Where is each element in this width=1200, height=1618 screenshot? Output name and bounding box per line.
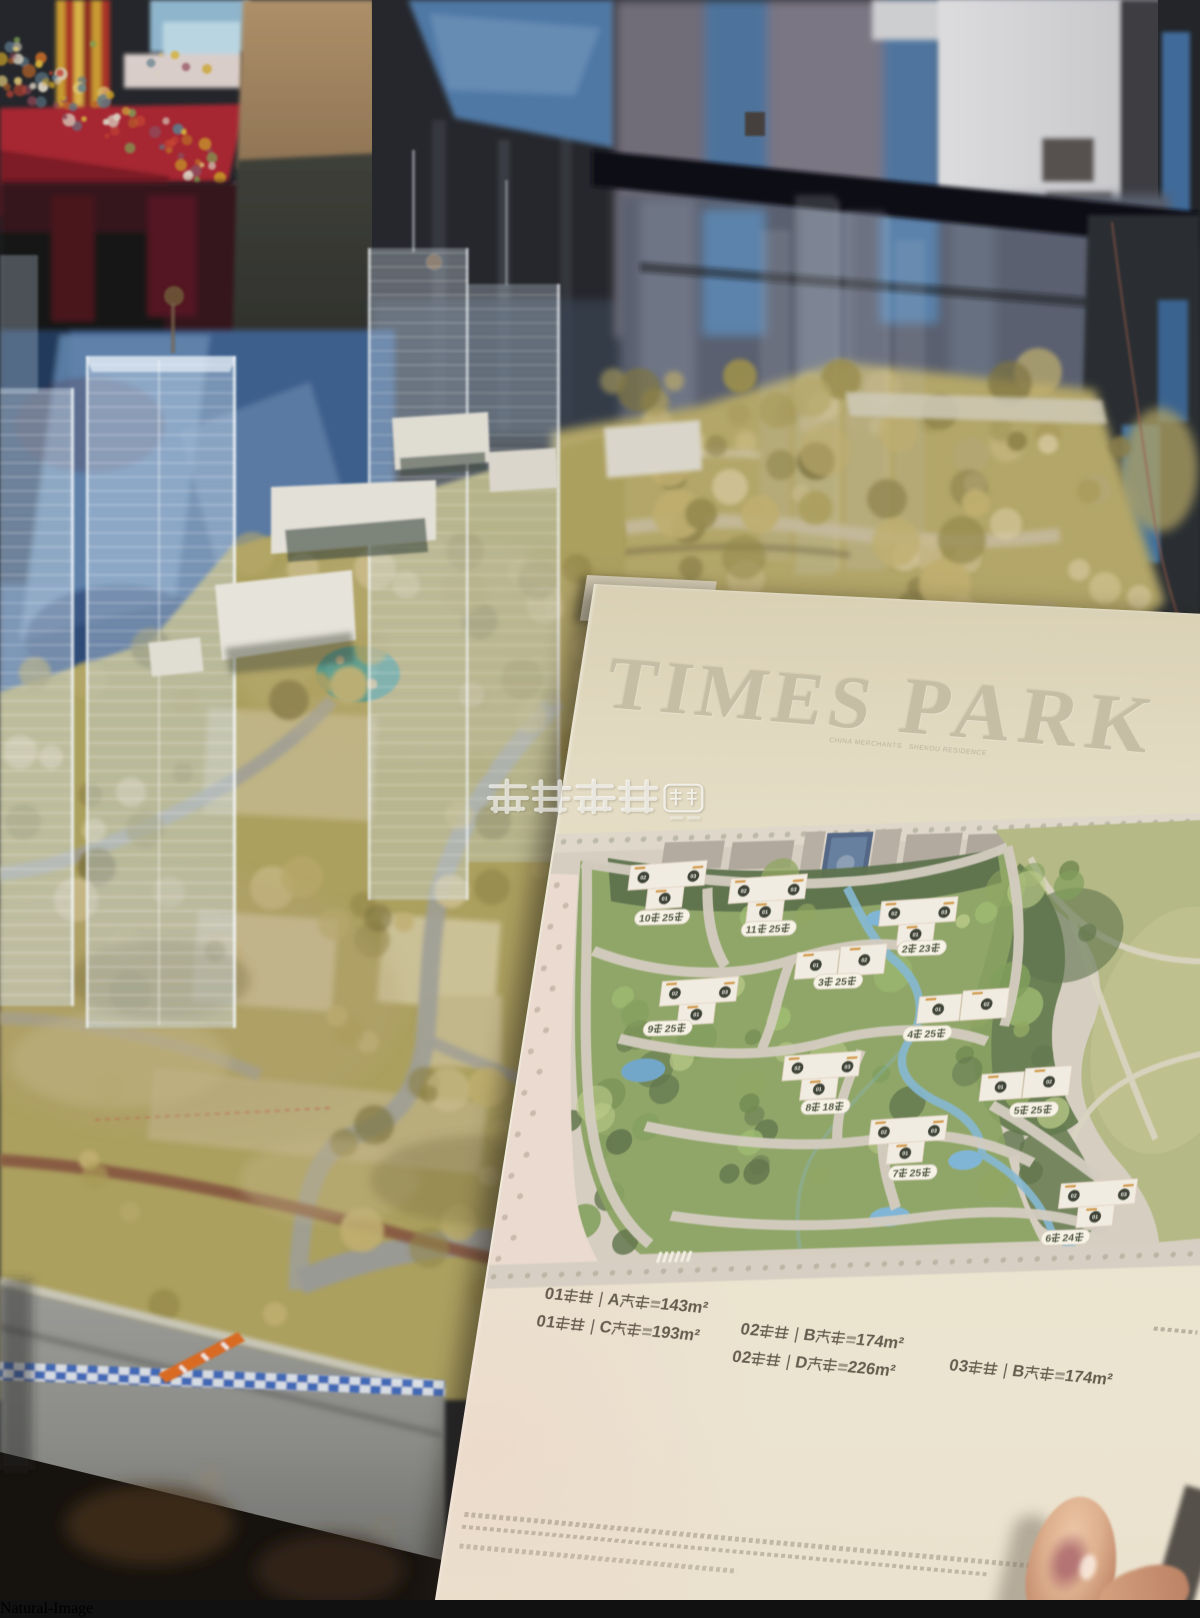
svg-text:25: 25 xyxy=(924,1029,937,1040)
svg-text:03: 03 xyxy=(844,1064,851,1070)
svg-text:02: 02 xyxy=(983,1002,990,1008)
svg-text:18: 18 xyxy=(822,1102,835,1113)
svg-text:01: 01 xyxy=(935,1007,942,1013)
svg-text:01: 01 xyxy=(693,1012,700,1018)
svg-text:01: 01 xyxy=(812,963,819,969)
svg-text:02: 02 xyxy=(861,958,868,964)
svg-text:25: 25 xyxy=(664,1024,677,1035)
svg-text:10: 10 xyxy=(638,913,651,924)
svg-text:02: 02 xyxy=(891,911,898,917)
svg-text:25: 25 xyxy=(661,913,674,924)
svg-text:01: 01 xyxy=(815,1087,822,1093)
svg-text:25: 25 xyxy=(834,977,847,988)
svg-text:03: 03 xyxy=(721,990,728,996)
svg-text:01: 01 xyxy=(1092,1215,1099,1221)
svg-text:23: 23 xyxy=(918,944,931,955)
svg-text:01: 01 xyxy=(912,932,919,938)
svg-text:03: 03 xyxy=(790,887,797,893)
svg-text:25: 25 xyxy=(768,924,781,935)
svg-text:02: 02 xyxy=(740,889,747,895)
svg-text:11: 11 xyxy=(745,925,758,936)
svg-text:01: 01 xyxy=(997,1085,1004,1091)
svg-text:02: 02 xyxy=(671,991,678,997)
svg-text:02: 02 xyxy=(880,1130,887,1136)
svg-text:01: 01 xyxy=(902,1151,909,1157)
svg-text:25: 25 xyxy=(1030,1105,1043,1116)
svg-text:24: 24 xyxy=(1062,1233,1075,1244)
svg-text:01: 01 xyxy=(762,910,769,916)
svg-text:03: 03 xyxy=(690,874,697,880)
svg-text:02: 02 xyxy=(1070,1193,1077,1199)
svg-text:02: 02 xyxy=(1046,1079,1053,1085)
svg-text:03: 03 xyxy=(941,910,948,916)
svg-text:02: 02 xyxy=(794,1066,801,1072)
svg-text:03: 03 xyxy=(1120,1192,1127,1198)
svg-text:01: 01 xyxy=(661,896,668,902)
svg-text:25: 25 xyxy=(909,1168,922,1179)
svg-text:02: 02 xyxy=(640,875,647,881)
svg-text:03: 03 xyxy=(930,1128,937,1134)
